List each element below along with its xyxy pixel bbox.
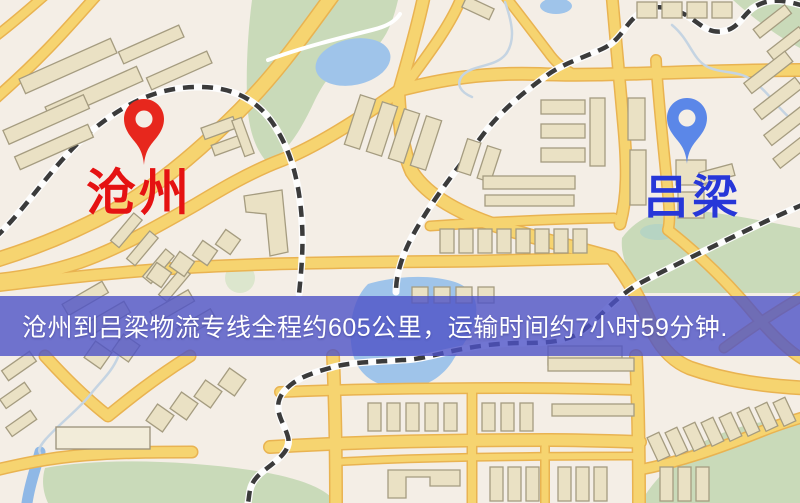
map-screenshot: 沧州 吕梁 沧州到吕梁物流专线全程约605公里，运输时间约7小时59分钟. xyxy=(0,0,800,503)
map-pin-icon xyxy=(118,96,170,168)
info-banner: 沧州到吕梁物流专线全程约605公里，运输时间约7小时59分钟. xyxy=(0,296,800,356)
route-summary-text: 沧州到吕梁物流专线全程约605公里，运输时间约7小时59分钟. xyxy=(0,308,728,344)
map-canvas xyxy=(0,0,800,503)
map-pin-icon xyxy=(661,95,713,167)
destination-city-label: 吕梁 xyxy=(643,174,741,220)
destination-pin[interactable] xyxy=(661,95,713,167)
origin-city-label: 沧州 xyxy=(86,168,192,218)
origin-pin[interactable] xyxy=(118,96,170,168)
